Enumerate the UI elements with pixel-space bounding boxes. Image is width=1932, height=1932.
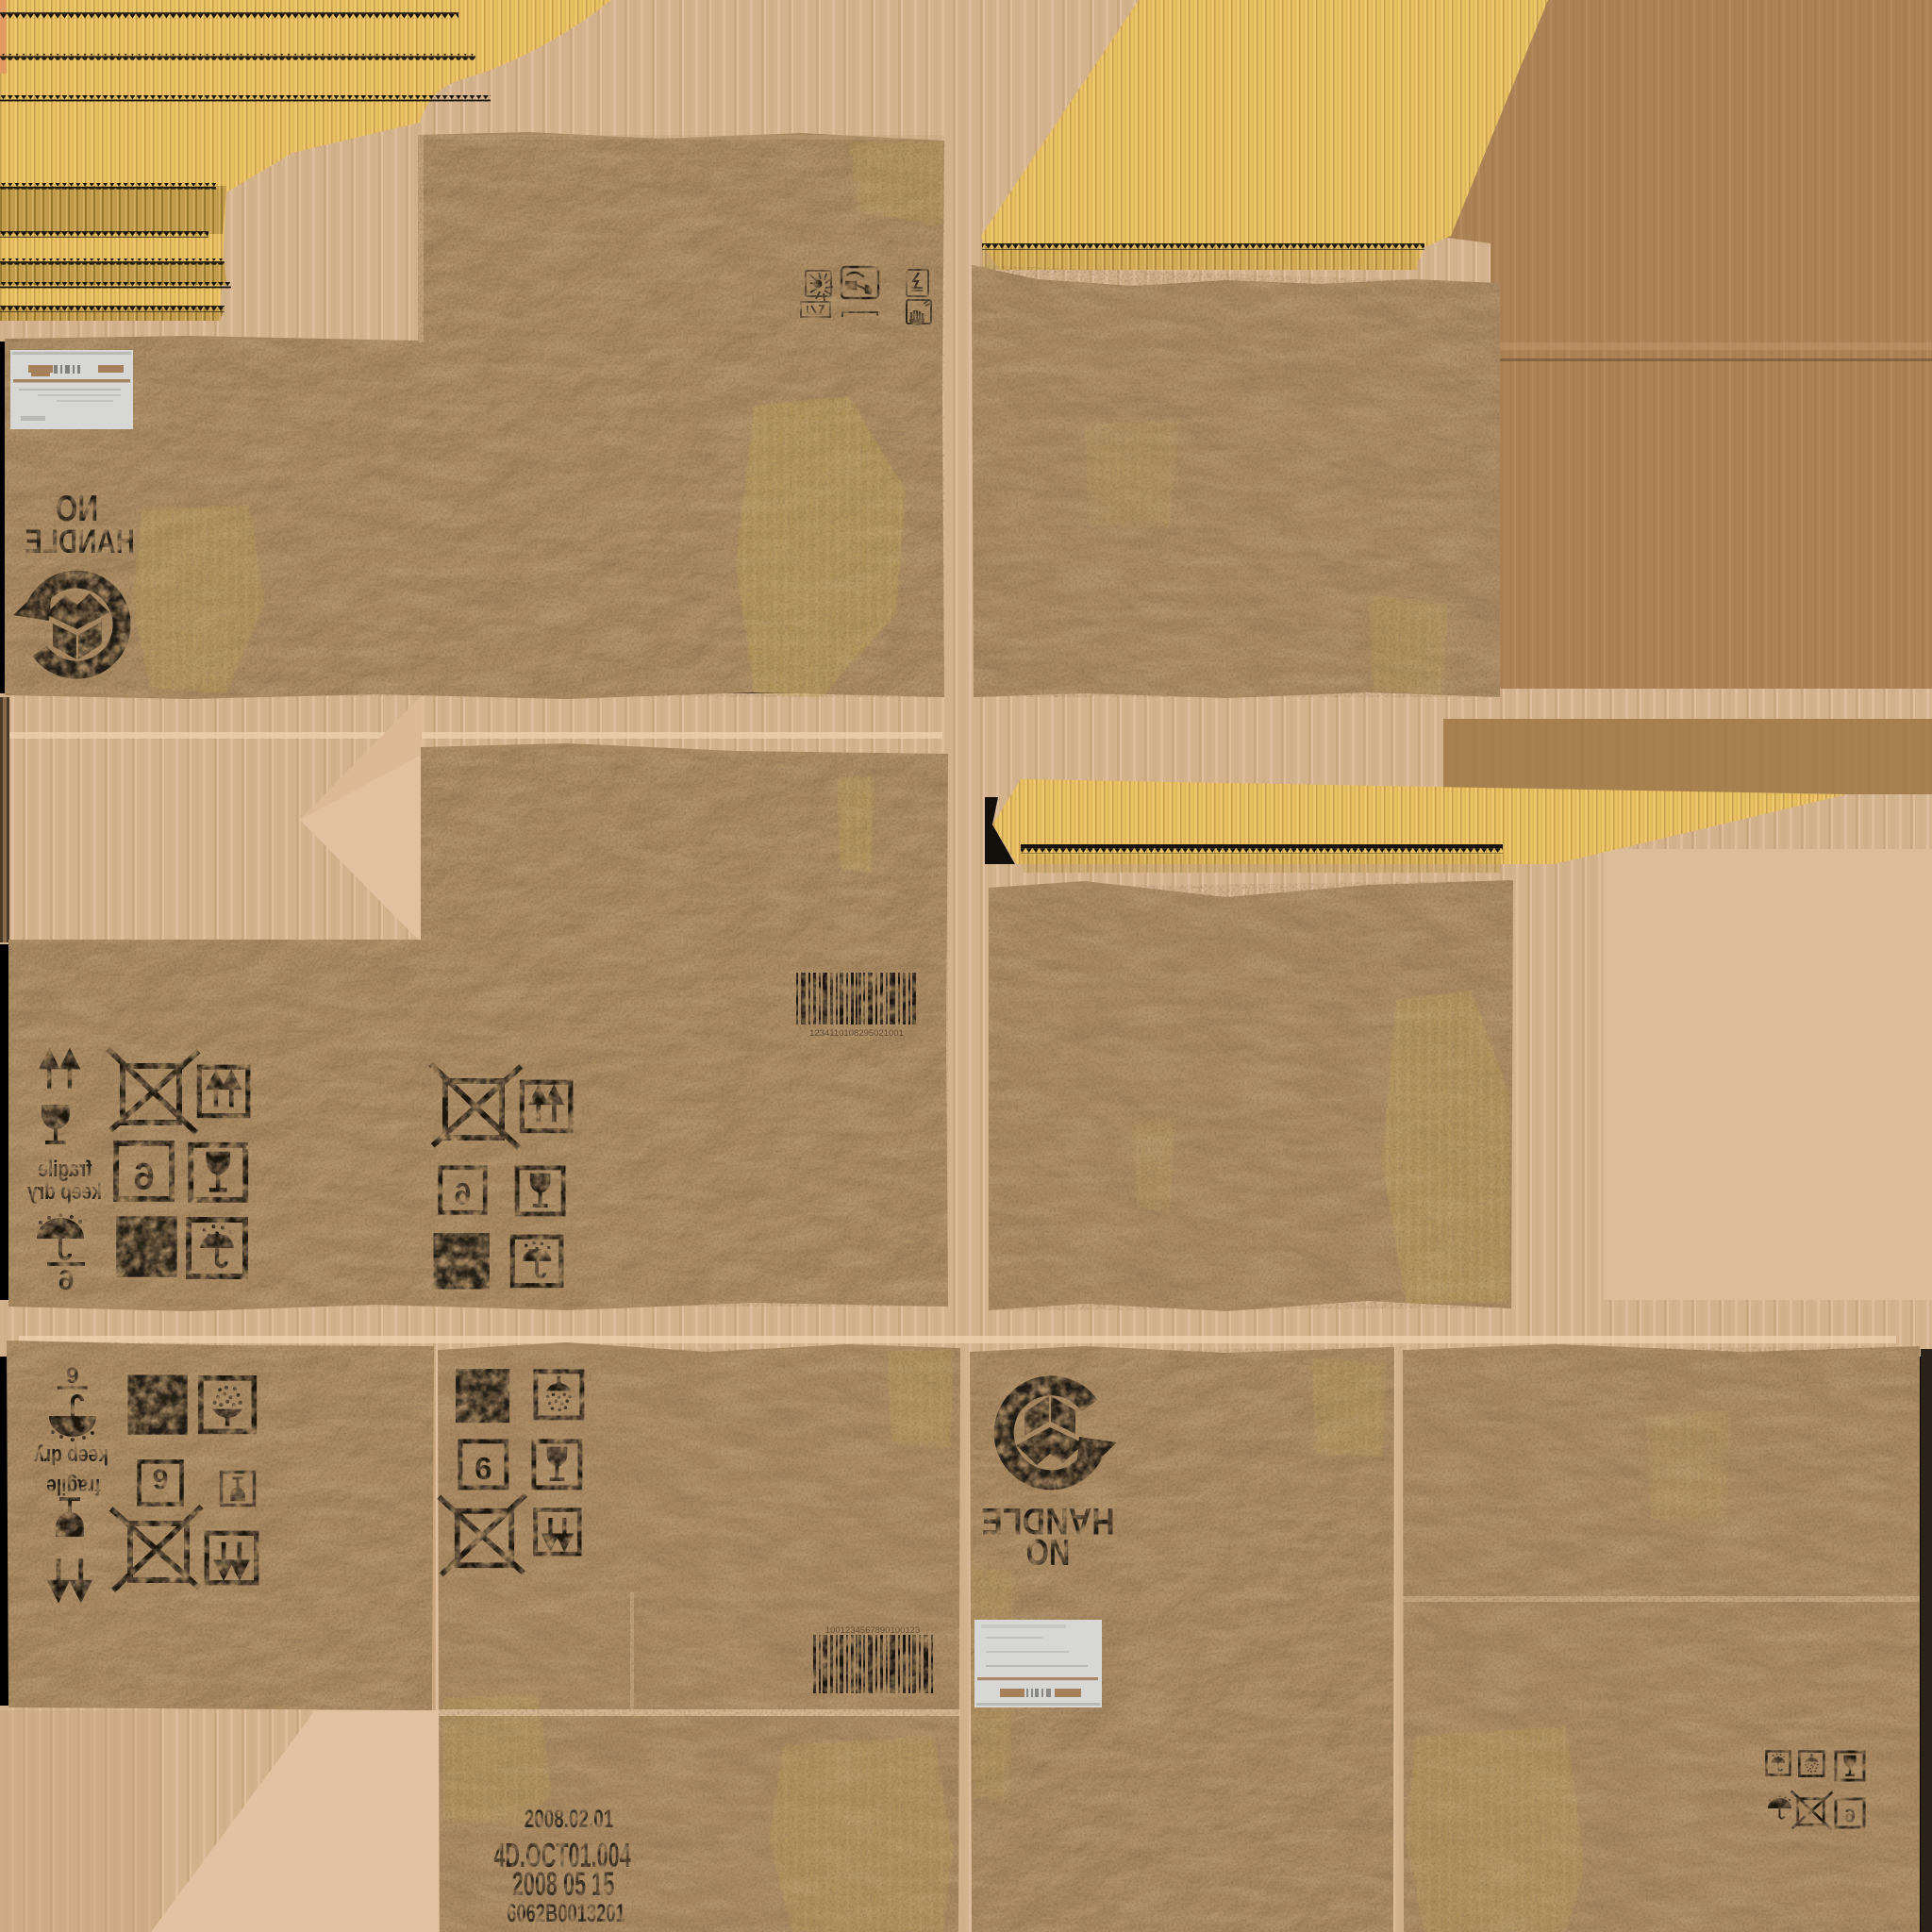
svg-text:fragile: fragile <box>46 1474 101 1500</box>
svg-text:6062B0013201: 6062B0013201 <box>507 1898 625 1926</box>
svg-text:keep dry: keep dry <box>27 1178 102 1205</box>
svg-text:HANDLE: HANDLE <box>25 523 135 560</box>
svg-text:keep dry: keep dry <box>34 1443 108 1470</box>
svg-text:6: 6 <box>66 1361 78 1387</box>
svg-text:1001234567890100123: 1001234567890100123 <box>825 1625 920 1636</box>
svg-text:NO: NO <box>1026 1531 1071 1572</box>
svg-text:6: 6 <box>58 1265 75 1296</box>
svg-text:2008.02.01: 2008.02.01 <box>525 1805 614 1833</box>
svg-text:1234110108295021001: 1234110108295021001 <box>809 1028 904 1039</box>
